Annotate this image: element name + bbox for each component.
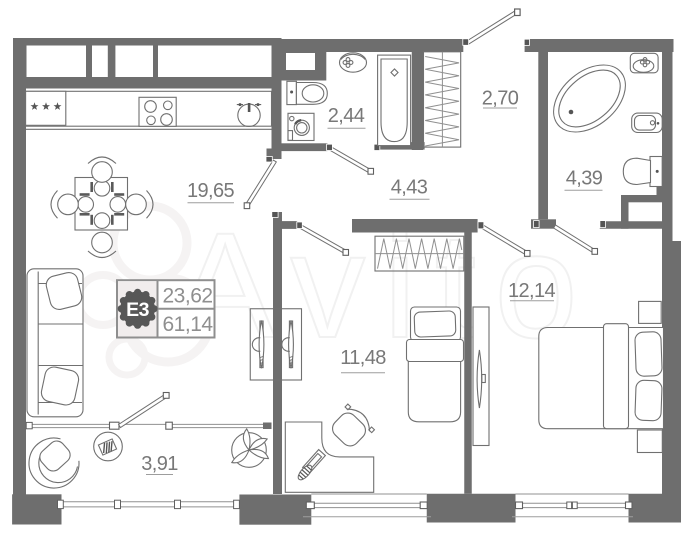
svg-text:19,65: 19,65 (187, 180, 235, 202)
svg-text:4,39: 4,39 (566, 168, 603, 190)
svg-text:4,43: 4,43 (391, 177, 428, 199)
svg-text:12,14: 12,14 (508, 280, 556, 302)
svg-text:23,62: 23,62 (163, 285, 213, 308)
svg-text:2,70: 2,70 (482, 88, 519, 110)
svg-text:2,44: 2,44 (328, 105, 365, 127)
svg-text:61,14: 61,14 (163, 313, 214, 336)
svg-text:11,48: 11,48 (340, 347, 386, 369)
svg-text:E3: E3 (126, 299, 150, 321)
svg-text:3,91: 3,91 (141, 453, 178, 475)
